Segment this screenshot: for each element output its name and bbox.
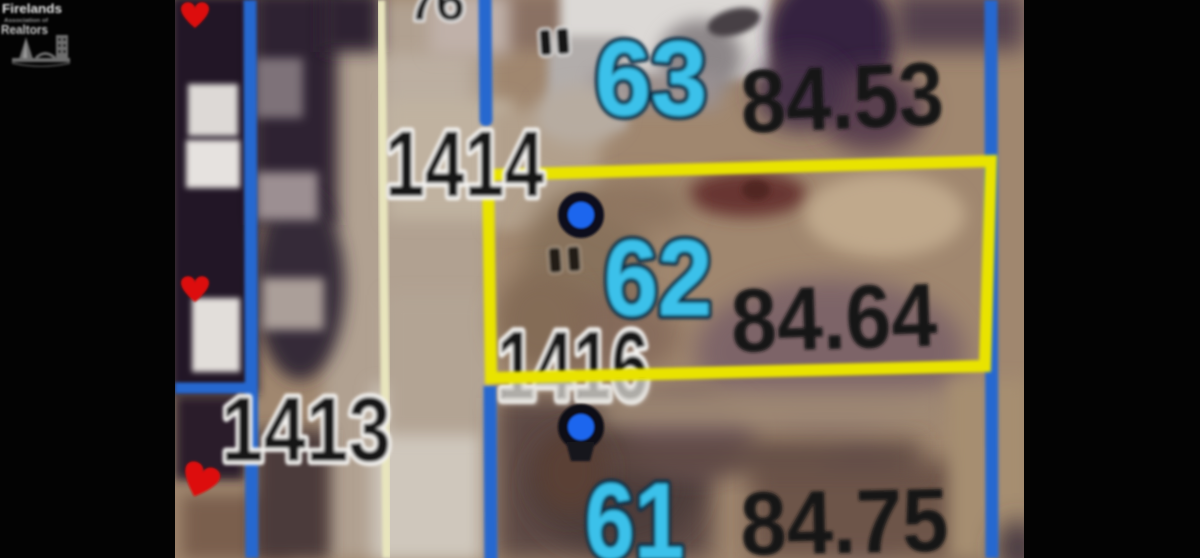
svg-text:Firelands: Firelands [2,1,62,16]
svg-text:61: 61 [585,460,684,558]
svg-text:Realtors: Realtors [1,22,48,37]
svg-text:63: 63 [595,20,707,138]
svg-text:62: 62 [604,217,712,338]
svg-text:84.75: 84.75 [739,471,949,558]
svg-text:76: 76 [408,0,463,32]
svg-text:1413: 1413 [221,379,391,481]
svg-text:1414: 1414 [385,111,544,216]
svg-text:84.64: 84.64 [729,266,938,372]
svg-text:84.53: 84.53 [739,44,946,153]
